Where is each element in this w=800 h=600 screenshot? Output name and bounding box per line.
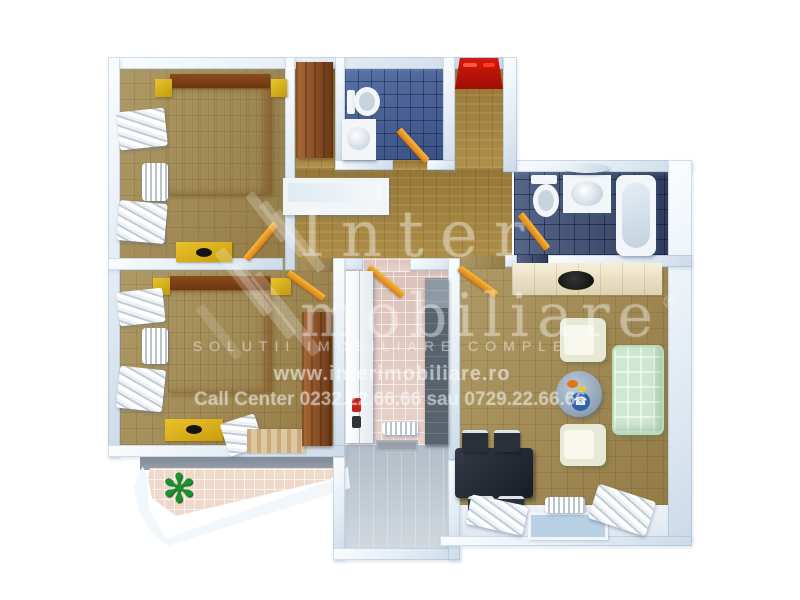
hall-tall-cabinet [425,278,448,445]
wall-vestibule-bottom [333,548,460,560]
entry-door-highlight [463,63,477,67]
bath1-sink-basin [347,127,370,150]
bath1-toilet-seat [359,92,375,111]
balcony: ✻ [134,455,350,555]
wall-bath1-right [443,57,455,170]
bath2-mirror [565,164,609,173]
wall-hall-right [448,258,460,460]
bedroom1-nightstand-right [271,79,287,97]
bedroom1-radiator-top [116,108,168,151]
entry-door-highlight2 [483,63,495,67]
phone-icon: ☎ [574,396,588,408]
bath2-sink-cabinet [563,175,611,213]
coffee-table-item-orange [567,380,578,388]
bedroom1-radiator-mid [142,163,168,201]
plant-icon: ✻ [162,469,196,509]
bedroom2-radiator-top [116,288,165,327]
coffee-table-phone: ☎ [571,392,590,411]
bath2-bathtub [616,175,656,256]
living-door-gap [460,255,505,269]
hall-closet-item-red [352,398,361,412]
living-armchair-top-seat [564,325,594,355]
bath1-sink-cabinet [342,119,376,160]
bedroom1-radiator-bottom [116,200,167,244]
living-coffee-table: ☎ [556,371,602,417]
hall-closet-item-dark [352,416,361,428]
bedroom1-desk-object [196,248,212,257]
wall-right [668,160,692,540]
bath2-sink-basin [571,181,603,206]
corridor-console [283,178,389,215]
bedroom1-nightstand-left [155,79,172,97]
entry-door [455,58,503,89]
bedroom1-bed [168,88,272,194]
corridor-console-top [288,183,382,202]
bath2-bathtub-inner [622,182,650,248]
living-dining-table [455,448,533,498]
hall-radiator [382,422,418,435]
bedroom1-wardrobe [296,62,333,158]
vestibule-floor [345,445,448,548]
apartment-floor-plan-render: ✻ [0,0,800,600]
bath2-toilet-bowl [533,184,559,217]
living-armchair-bottom [560,424,606,466]
wall-entry-right [503,57,517,172]
hall-closet [346,271,373,443]
bedroom2-desk [165,419,223,441]
living-sofa [612,345,664,435]
living-armchair-top [560,318,606,362]
hall-doormat [376,440,418,451]
wall-bath1-bottom-b [427,160,455,170]
dining-chair-1 [462,430,488,452]
wall-vestibule-left [333,457,345,560]
bedroom2-radiator-bottom [116,366,166,413]
living-radiator-middle [545,497,585,513]
bedroom2-rug [247,429,305,453]
bedroom1-bed-headboard [170,74,270,88]
kitchen-sink [558,271,594,290]
bedroom2-radiator-mid [142,328,168,364]
living-armchair-bottom-seat [564,430,594,459]
bedroom2-desk-object [186,425,202,434]
kitchen-counter [512,263,662,295]
bath2-toilet-tank [531,175,557,184]
bath2-toilet-seat [538,190,554,211]
bath1-toilet-bowl [354,87,380,116]
wall-bath1-bottom-a [335,160,393,170]
dining-chair-2 [494,430,520,452]
wall-bedroom2-right [333,258,345,457]
